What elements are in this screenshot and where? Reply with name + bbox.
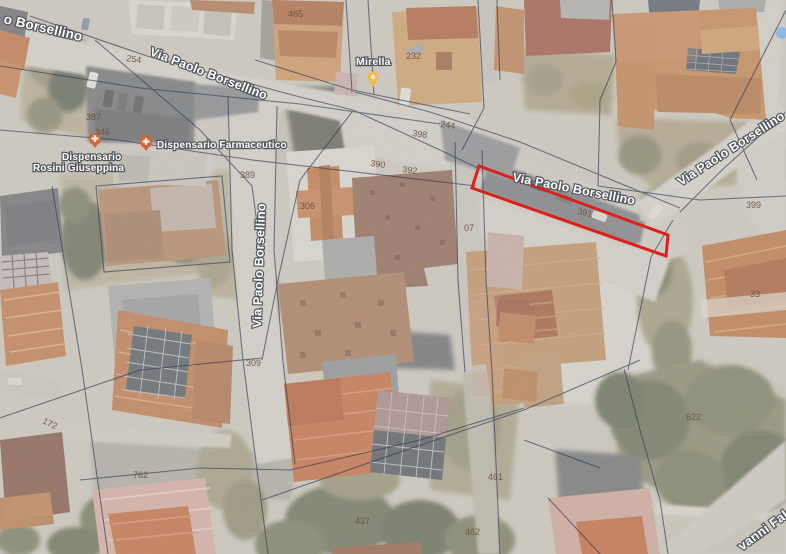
svg-text:Mirella: Mirella (356, 56, 391, 68)
svg-text:622: 622 (686, 412, 701, 422)
svg-text:462: 462 (465, 527, 480, 537)
svg-text:232: 232 (406, 51, 421, 61)
svg-text:306: 306 (300, 201, 315, 211)
svg-text:762: 762 (133, 470, 148, 480)
svg-text:Dispensario Farmaceutico: Dispensario Farmaceutico (157, 140, 287, 151)
svg-text:389: 389 (240, 170, 255, 180)
svg-text:437: 437 (355, 516, 370, 526)
svg-text:244: 244 (440, 119, 456, 131)
svg-text:465: 465 (288, 9, 303, 19)
svg-text:398: 398 (412, 128, 428, 140)
svg-text:07: 07 (464, 223, 474, 233)
svg-text:390: 390 (370, 158, 386, 170)
svg-text:392: 392 (402, 164, 418, 176)
svg-text:399: 399 (746, 200, 761, 210)
svg-text:387: 387 (86, 112, 101, 122)
svg-text:Dispensario: Dispensario (62, 152, 121, 163)
svg-text:309: 309 (246, 358, 261, 368)
svg-text:254: 254 (126, 53, 142, 65)
svg-text:Rosini Giuseppina: Rosini Giuseppina (33, 163, 124, 174)
svg-text:461: 461 (488, 472, 503, 482)
svg-text:346: 346 (95, 127, 110, 137)
svg-text:33: 33 (750, 289, 760, 299)
